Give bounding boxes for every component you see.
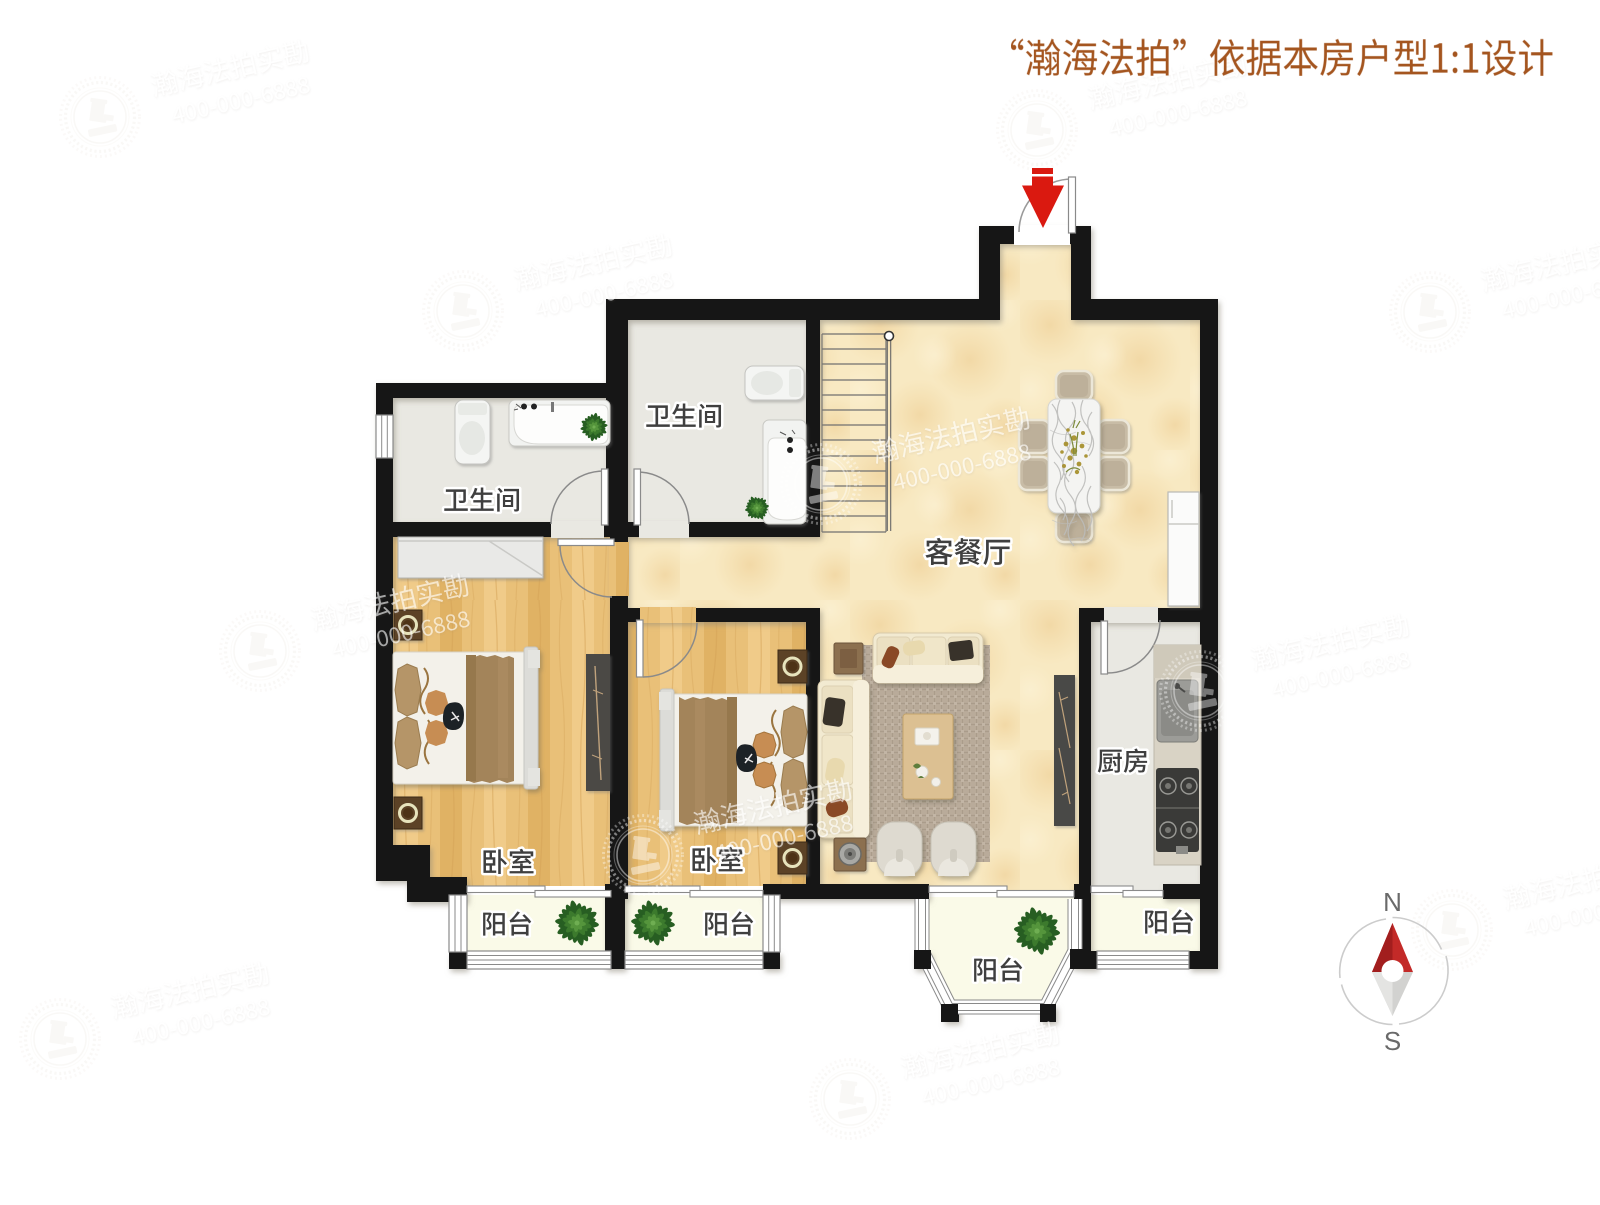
svg-text:S: S [1384,1026,1401,1056]
svg-text:N: N [1383,887,1402,917]
